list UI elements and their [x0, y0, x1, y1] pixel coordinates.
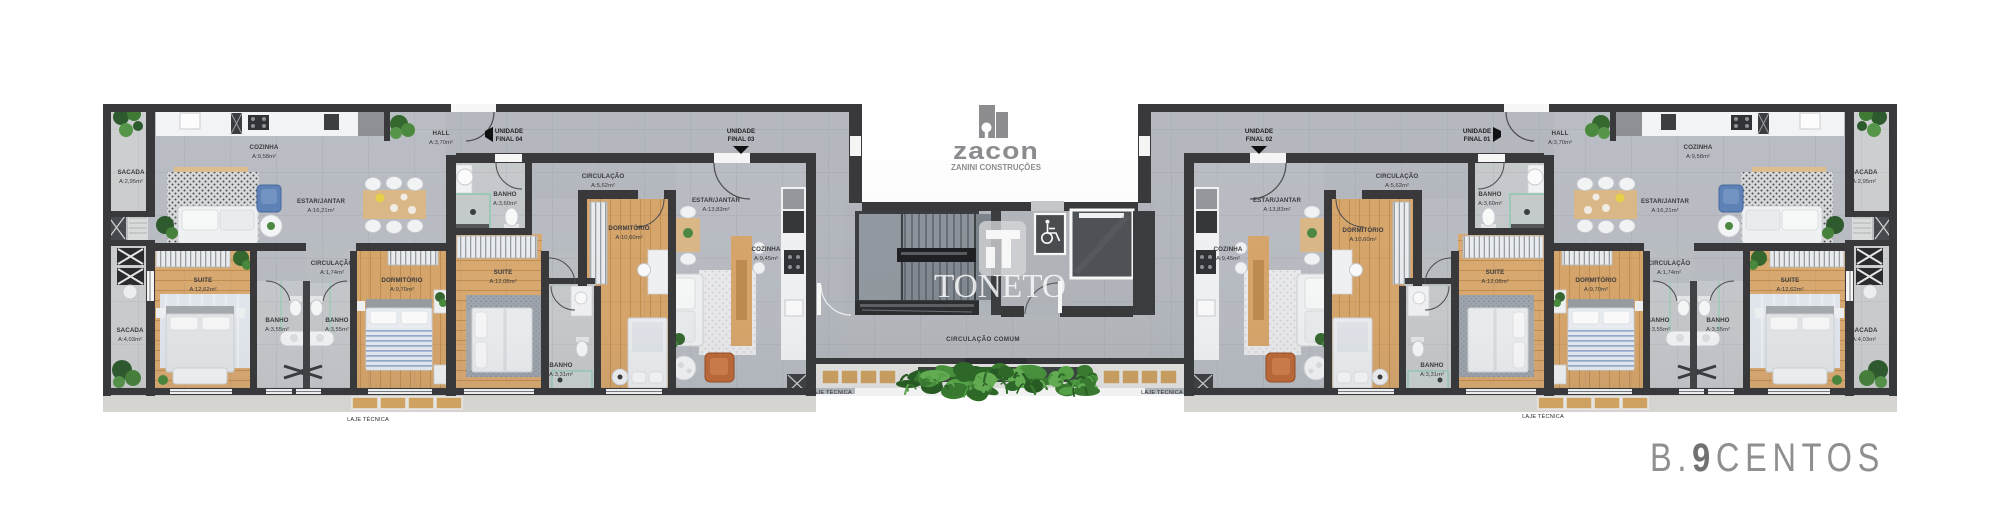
svg-text:LAJE TÉCNICA: LAJE TÉCNICA [347, 416, 389, 423]
svg-text:FINAL 02: FINAL 02 [1246, 136, 1273, 143]
svg-text:A:3,70m²: A:3,70m² [1548, 140, 1572, 146]
svg-text:COZINHA: COZINHA [1684, 144, 1713, 151]
svg-text:ESTAR/JANTAR: ESTAR/JANTAR [692, 197, 740, 204]
svg-text:CIRCULAÇÃO: CIRCULAÇÃO [1648, 260, 1691, 267]
svg-text:A:3,31m²: A:3,31m² [1420, 372, 1444, 378]
svg-text:HALL: HALL [1552, 130, 1569, 137]
svg-text:CIRCULAÇÃO COMUM: CIRCULAÇÃO COMUM [946, 336, 1020, 343]
svg-text:BANHO: BANHO [265, 317, 288, 324]
svg-text:SACADA: SACADA [116, 327, 144, 334]
svg-text:BANHO: BANHO [1478, 191, 1501, 198]
svg-text:ESTAR/JANTAR: ESTAR/JANTAR [1253, 197, 1301, 204]
svg-text:A:5,62m²: A:5,62m² [1385, 183, 1409, 189]
svg-text:LAJE TÉCNICA: LAJE TÉCNICA [1522, 413, 1564, 420]
svg-text:BANHO: BANHO [549, 362, 572, 369]
svg-text:BANHO: BANHO [1420, 362, 1443, 369]
svg-text:CIRCULAÇÃO: CIRCULAÇÃO [311, 260, 354, 267]
svg-text:A:9,70m²: A:9,70m² [1584, 287, 1608, 293]
svg-text:A:10,60m²: A:10,60m² [1349, 237, 1376, 243]
svg-text:A:3,60m²: A:3,60m² [493, 201, 517, 207]
svg-text:A:4,03m²: A:4,03m² [1852, 337, 1876, 343]
svg-text:FINAL 01: FINAL 01 [1464, 136, 1491, 143]
svg-text:A:1,74m²: A:1,74m² [1657, 270, 1681, 276]
svg-text:A:13,83m²: A:13,83m² [1263, 207, 1290, 213]
svg-text:A:9,58m²: A:9,58m² [252, 154, 276, 160]
svg-text:B.9CENTOS: B.9CENTOS [1650, 436, 1885, 480]
svg-text:ESTAR/JANTAR: ESTAR/JANTAR [297, 198, 345, 205]
svg-text:FINAL 04: FINAL 04 [496, 136, 523, 143]
svg-text:COZINHA: COZINHA [1214, 246, 1243, 253]
svg-text:A:12,08m²: A:12,08m² [489, 279, 516, 285]
svg-text:COZINHA: COZINHA [250, 144, 279, 151]
svg-text:UNIDADE: UNIDADE [1463, 128, 1491, 135]
svg-text:BANHO: BANHO [325, 317, 348, 324]
svg-text:A:5,62m²: A:5,62m² [591, 183, 615, 189]
svg-text:A:1,74m²: A:1,74m² [320, 270, 344, 276]
svg-text:BANHO: BANHO [1646, 317, 1669, 324]
svg-text:A:9,45m²: A:9,45m² [1216, 256, 1240, 262]
svg-text:SUITE: SUITE [494, 269, 513, 276]
svg-text:CIRCULAÇÃO: CIRCULAÇÃO [1376, 173, 1419, 180]
svg-text:A:3,55m²: A:3,55m² [325, 327, 349, 333]
svg-text:SACADA: SACADA [1850, 169, 1878, 176]
svg-text:SUITE: SUITE [194, 277, 213, 284]
svg-text:UNIDADE: UNIDADE [1245, 128, 1273, 135]
svg-text:ESTAR/JANTAR: ESTAR/JANTAR [1641, 198, 1689, 205]
svg-text:SACADA: SACADA [117, 169, 145, 176]
svg-text:A:9,45m²: A:9,45m² [754, 256, 778, 262]
svg-text:DORMITÓRIO: DORMITÓRIO [1575, 276, 1616, 284]
svg-text:UNIDADE: UNIDADE [727, 128, 755, 135]
svg-text:A:10,60m²: A:10,60m² [615, 235, 642, 241]
svg-text:A:4,03m²: A:4,03m² [118, 337, 142, 343]
svg-text:A:13,83m²: A:13,83m² [702, 207, 729, 213]
svg-text:DORMITÓRIO: DORMITÓRIO [608, 224, 649, 232]
svg-text:A:12,62m²: A:12,62m² [189, 287, 216, 293]
svg-text:HALL: HALL [433, 130, 450, 137]
svg-text:A:2,95m²: A:2,95m² [119, 179, 143, 185]
svg-text:LAJE TÉCNICA: LAJE TÉCNICA [810, 389, 852, 396]
svg-text:SACADA: SACADA [1850, 327, 1878, 334]
svg-text:A:3,55m²: A:3,55m² [1646, 327, 1670, 333]
svg-text:CIRCULAÇÃO: CIRCULAÇÃO [582, 173, 625, 180]
svg-text:BANHO: BANHO [493, 191, 516, 198]
svg-text:SUITE: SUITE [1486, 269, 1505, 276]
svg-text:DORMITÓRIO: DORMITÓRIO [381, 276, 422, 284]
svg-text:A:12,62m²: A:12,62m² [1776, 287, 1803, 293]
svg-text:DORMITÓRIO: DORMITÓRIO [1342, 226, 1383, 234]
svg-text:A:16,21m²: A:16,21m² [1651, 208, 1678, 214]
svg-text:A:2,95m²: A:2,95m² [1852, 179, 1876, 185]
svg-text:A:3,55m²: A:3,55m² [265, 327, 289, 333]
svg-text:A:12,08m²: A:12,08m² [1481, 279, 1508, 285]
svg-text:FINAL 03: FINAL 03 [728, 136, 755, 143]
svg-text:COZINHA: COZINHA [752, 246, 781, 253]
svg-text:A:9,58m²: A:9,58m² [1686, 154, 1710, 160]
svg-text:SUITE: SUITE [1781, 277, 1800, 284]
svg-text:A:3,31m²: A:3,31m² [549, 372, 573, 378]
svg-text:A:3,55m²: A:3,55m² [1706, 327, 1730, 333]
svg-text:A:16,21m²: A:16,21m² [307, 208, 334, 214]
svg-text:BANHO: BANHO [1706, 317, 1729, 324]
svg-text:A:3,60m²: A:3,60m² [1478, 201, 1502, 207]
svg-text:LAJE TÉCNICA: LAJE TÉCNICA [1141, 389, 1183, 396]
svg-text:A:3,70m²: A:3,70m² [429, 140, 453, 146]
svg-text:A:9,70m²: A:9,70m² [390, 287, 414, 293]
svg-text:UNIDADE: UNIDADE [495, 128, 523, 135]
